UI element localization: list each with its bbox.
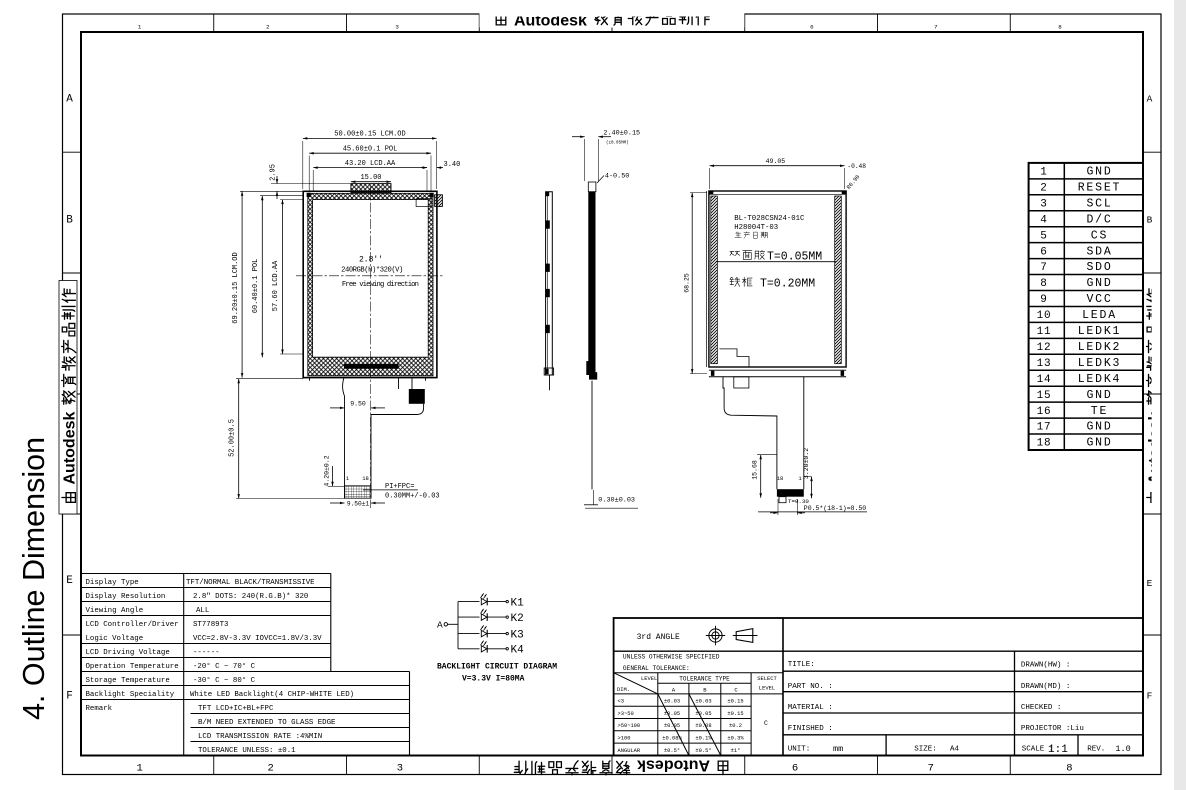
svg-text:2: 2	[1040, 182, 1047, 194]
svg-text:CS: CS	[1091, 229, 1108, 242]
svg-text:Remark: Remark	[86, 705, 113, 713]
svg-text:10: 10	[1037, 310, 1052, 322]
svg-text:B: B	[66, 215, 73, 227]
svg-text:Display Resolution: Display Resolution	[86, 593, 166, 601]
svg-text:8: 8	[1066, 763, 1072, 775]
svg-text:3: 3	[395, 24, 399, 31]
svg-text:±0.08%: ±0.08%	[662, 735, 682, 741]
svg-text:Backlight Speciality: Backlight Speciality	[86, 691, 175, 699]
svg-text:Autodesk: Autodesk	[62, 412, 79, 485]
svg-text:A4: A4	[950, 746, 960, 754]
svg-text:LCD Controller/Driver: LCD Controller/Driver	[86, 621, 179, 629]
svg-text:Display Type: Display Type	[86, 579, 139, 587]
svg-text:±0.03: ±0.03	[664, 699, 680, 705]
svg-text:240RGB(H)*320(V): 240RGB(H)*320(V)	[341, 267, 403, 275]
svg-text:LEVEL: LEVEL	[641, 676, 657, 682]
svg-text:LEDK2: LEDK2	[1078, 341, 1122, 354]
svg-text:E: E	[66, 575, 73, 587]
svg-text:LEVEL: LEVEL	[759, 686, 775, 692]
svg-text:±0.2: ±0.2	[729, 723, 742, 729]
svg-text:18: 18	[1037, 438, 1052, 450]
svg-text:15.68: 15.68	[752, 460, 759, 480]
svg-text:8: 8	[1058, 24, 1062, 31]
svg-text:>3~50: >3~50	[618, 711, 634, 717]
svg-text:------: ------	[193, 649, 220, 657]
svg-text:A: A	[66, 94, 73, 106]
svg-text:±0.15: ±0.15	[727, 699, 743, 705]
svg-text:SIZE:: SIZE:	[914, 746, 937, 754]
svg-text:11: 11	[1037, 326, 1052, 338]
svg-text:MATERIAL :: MATERIAL :	[788, 704, 833, 712]
svg-text:TITLE:: TITLE:	[788, 661, 815, 669]
svg-text:43.20 LCD.AA: 43.20 LCD.AA	[345, 160, 396, 168]
svg-text:LCD Driving Voltage: LCD Driving Voltage	[86, 649, 170, 657]
svg-text:REV.: REV.	[1087, 746, 1105, 754]
svg-text:±0.05: ±0.05	[664, 711, 680, 717]
svg-text:LEDK3: LEDK3	[1078, 357, 1122, 370]
svg-text:9: 9	[1040, 294, 1047, 306]
svg-text:±0.05: ±0.05	[695, 711, 711, 717]
svg-text:A: A	[437, 620, 443, 631]
svg-text:P0.5*(18-1)=8.50: P0.5*(18-1)=8.50	[804, 505, 867, 512]
svg-text:B: B	[1147, 215, 1153, 226]
svg-text:(±0.05MM): (±0.05MM)	[606, 141, 629, 146]
svg-text:6: 6	[1040, 246, 1047, 258]
svg-text:<3: <3	[618, 699, 624, 705]
svg-text:D/C: D/C	[1086, 213, 1112, 226]
svg-text:±0.5°: ±0.5°	[664, 748, 680, 754]
svg-text:57.60 LCD.AA: 57.60 LCD.AA	[272, 260, 280, 311]
svg-text:GND: GND	[1086, 389, 1112, 402]
svg-text:UNIT:: UNIT:	[788, 746, 811, 754]
svg-text:7: 7	[934, 24, 938, 31]
svg-text:T=0.20MM: T=0.20MM	[760, 277, 815, 290]
svg-text:8: 8	[1040, 278, 1047, 290]
svg-text:White LED Backlight(4 CHIP-WHI: White LED Backlight(4 CHIP-WHITE LED)	[190, 691, 354, 699]
svg-text:>100: >100	[618, 735, 631, 741]
svg-text:F: F	[66, 691, 73, 703]
svg-text:-0.48: -0.48	[847, 163, 866, 170]
svg-text:LEDK1: LEDK1	[1078, 325, 1122, 338]
svg-text:VCC: VCC	[1086, 293, 1112, 306]
svg-text:SDA: SDA	[1086, 245, 1112, 258]
svg-text:CHECKED :: CHECKED :	[1021, 704, 1062, 712]
svg-text:B/M NEED EXTENDED TO GLASS EDG: B/M NEED EXTENDED TO GLASS EDGE	[198, 719, 336, 727]
svg-text:K2: K2	[511, 613, 524, 625]
svg-text:1: 1	[138, 24, 142, 31]
svg-text:TOLERANCE TYPE: TOLERANCE TYPE	[679, 676, 730, 683]
svg-text:TE: TE	[1091, 405, 1108, 418]
svg-text:4-0.50: 4-0.50	[605, 173, 629, 181]
svg-text:52.00±0.5: 52.00±0.5	[228, 419, 236, 457]
svg-text:V=3.3V I=80MA: V=3.3V I=80MA	[462, 675, 525, 684]
svg-text:H28004T-03: H28004T-03	[734, 224, 778, 232]
svg-text:-30° C ~ 80° C: -30° C ~ 80° C	[193, 676, 256, 685]
svg-text:C: C	[764, 720, 768, 727]
svg-text:DRAWN(MD) :: DRAWN(MD) :	[1021, 683, 1071, 691]
svg-text:VCC=2.8V-3.3V IOVCC=1.8V/3.3V: VCC=2.8V-3.3V IOVCC=1.8V/3.3V	[193, 635, 322, 643]
svg-text:69.20±0.15 LCM.OD: 69.20±0.15 LCM.OD	[232, 252, 240, 323]
svg-text:ST7789T3: ST7789T3	[193, 621, 228, 629]
svg-text:±0.3%: ±0.3%	[727, 735, 744, 741]
svg-text:7: 7	[928, 763, 934, 775]
svg-text:SCL: SCL	[1086, 197, 1112, 210]
svg-text:E: E	[1147, 578, 1153, 589]
svg-text:TFT/NORMAL BLACK/TRANSMISSIVE: TFT/NORMAL BLACK/TRANSMISSIVE	[186, 579, 315, 587]
svg-text:GENERAL TOLERANCE:: GENERAL TOLERANCE:	[623, 665, 690, 672]
svg-text:T=0.30: T=0.30	[788, 498, 809, 505]
svg-text:6: 6	[810, 24, 814, 31]
svg-text:SDO: SDO	[1086, 261, 1112, 274]
svg-text:9.50: 9.50	[350, 401, 366, 408]
svg-text:9.50±1: 9.50±1	[347, 500, 370, 507]
svg-text:±0.05: ±0.05	[664, 723, 680, 729]
svg-text:DRAWN(HW) :: DRAWN(HW) :	[1021, 662, 1071, 670]
svg-text:1: 1	[1040, 167, 1047, 179]
svg-text:15: 15	[1037, 390, 1052, 402]
svg-text:6: 6	[792, 763, 798, 775]
svg-text:17: 17	[1037, 422, 1052, 434]
svg-text:2.95: 2.95	[270, 164, 278, 181]
svg-text:3.20±0.2: 3.20±0.2	[803, 448, 810, 479]
svg-text:18: 18	[362, 475, 369, 482]
svg-text:LCD TRANSMISSION RATE :4%MIN: LCD TRANSMISSION RATE :4%MIN	[198, 733, 322, 741]
svg-text:RESET: RESET	[1078, 181, 1122, 194]
svg-text:GND: GND	[1086, 437, 1112, 450]
svg-text:mm: mm	[833, 744, 843, 754]
svg-text:LEDA: LEDA	[1082, 309, 1117, 322]
svg-text:3: 3	[397, 763, 403, 775]
svg-text:K4: K4	[511, 645, 525, 657]
svg-text:PART NO. :: PART NO. :	[788, 683, 833, 691]
svg-text:12: 12	[1037, 342, 1052, 354]
svg-text:UNLESS OTHERWISE SPECIFIED: UNLESS OTHERWISE SPECIFIED	[623, 653, 720, 660]
svg-text:ALL: ALL	[196, 607, 209, 615]
svg-text:4.20±0.2: 4.20±0.2	[324, 455, 331, 486]
svg-text:1:1: 1:1	[1048, 744, 1068, 756]
svg-text:49.05: 49.05	[766, 158, 786, 165]
svg-text:18: 18	[777, 475, 784, 482]
svg-text:3rd ANGLE: 3rd ANGLE	[637, 633, 680, 642]
svg-text:TFT LCD+IC+BL+FPC: TFT LCD+IC+BL+FPC	[198, 705, 274, 713]
svg-text:PROJECTOR :Liu: PROJECTOR :Liu	[1021, 725, 1084, 733]
svg-text:F: F	[1147, 691, 1153, 702]
svg-text:FINISHED :: FINISHED :	[788, 725, 833, 733]
svg-text:BACKLIGHT CIRCUIT DIAGRAM: BACKLIGHT CIRCUIT DIAGRAM	[437, 663, 557, 672]
svg-text:Logic Voltage: Logic Voltage	[86, 635, 144, 643]
svg-text:Viewing Angle: Viewing Angle	[86, 607, 144, 615]
svg-text:13: 13	[1037, 358, 1052, 370]
svg-text:A: A	[1147, 94, 1153, 105]
svg-text:4. Outline Dimension: 4. Outline Dimension	[17, 437, 51, 720]
svg-text:ANGULAR: ANGULAR	[618, 748, 641, 754]
svg-text:Storage Temperature: Storage Temperature	[86, 677, 170, 685]
svg-text:3: 3	[1040, 198, 1047, 210]
svg-text:K3: K3	[511, 629, 524, 641]
svg-text:TOLERANCE UNLESS: ±0.1: TOLERANCE UNLESS: ±0.1	[198, 747, 296, 755]
svg-text:60.40±0.1 POL: 60.40±0.1 POL	[252, 259, 260, 314]
svg-text:Operation Temperature: Operation Temperature	[86, 663, 179, 671]
svg-text:±0.03: ±0.03	[695, 699, 711, 705]
svg-text:4: 4	[1040, 214, 1047, 226]
svg-text:2: 2	[268, 763, 274, 775]
svg-text:16: 16	[1037, 406, 1052, 418]
svg-text:3.40: 3.40	[444, 161, 461, 169]
svg-text:50.00±0.15 LCM.OD: 50.00±0.15 LCM.OD	[334, 131, 405, 139]
svg-text:DIM.: DIM.	[617, 687, 630, 693]
svg-text:PI+FPC=: PI+FPC=	[385, 483, 414, 491]
svg-text:Free viewing direction: Free viewing direction	[342, 281, 419, 289]
svg-text:2: 2	[266, 24, 270, 31]
svg-text:±1°: ±1°	[731, 748, 741, 754]
svg-text:7: 7	[1040, 262, 1047, 274]
svg-text:±0.15: ±0.15	[727, 711, 743, 717]
svg-text:14: 14	[1037, 374, 1052, 386]
svg-text:Autodesk: Autodesk	[637, 757, 710, 774]
svg-text:2.8'': 2.8''	[359, 256, 383, 265]
svg-text:LEDK4: LEDK4	[1078, 373, 1122, 386]
svg-text:-20° C ~ 70° C: -20° C ~ 70° C	[193, 662, 256, 671]
svg-text:±0.5°: ±0.5°	[695, 748, 711, 754]
svg-text:0.30MM+/-0.03: 0.30MM+/-0.03	[385, 493, 440, 501]
svg-text:1.0: 1.0	[1115, 744, 1130, 754]
svg-text:45.60±0.1 POL: 45.60±0.1 POL	[343, 145, 398, 153]
svg-text:BL-T028CSN24-01C: BL-T028CSN24-01C	[734, 215, 805, 223]
svg-text:15.00: 15.00	[360, 174, 381, 182]
svg-text:GND: GND	[1086, 277, 1112, 290]
svg-text:68.25: 68.25	[684, 273, 691, 293]
svg-text:±0.1%: ±0.1%	[695, 735, 712, 741]
svg-text:GND: GND	[1086, 166, 1112, 179]
svg-text:0.30±0.03: 0.30±0.03	[598, 497, 635, 505]
svg-text:1: 1	[136, 763, 142, 775]
svg-text:K1: K1	[511, 597, 525, 609]
svg-text:GND: GND	[1086, 421, 1112, 434]
svg-text:2.8" DOTS: 240(R.G.B)* 320: 2.8" DOTS: 240(R.G.B)* 320	[193, 593, 308, 601]
svg-text:>50~100: >50~100	[618, 723, 641, 729]
svg-text:SELECT: SELECT	[757, 676, 777, 682]
svg-text:5: 5	[1040, 230, 1047, 242]
svg-text:±0.08: ±0.08	[695, 723, 711, 729]
svg-text:2.40±0.15: 2.40±0.15	[603, 130, 640, 138]
